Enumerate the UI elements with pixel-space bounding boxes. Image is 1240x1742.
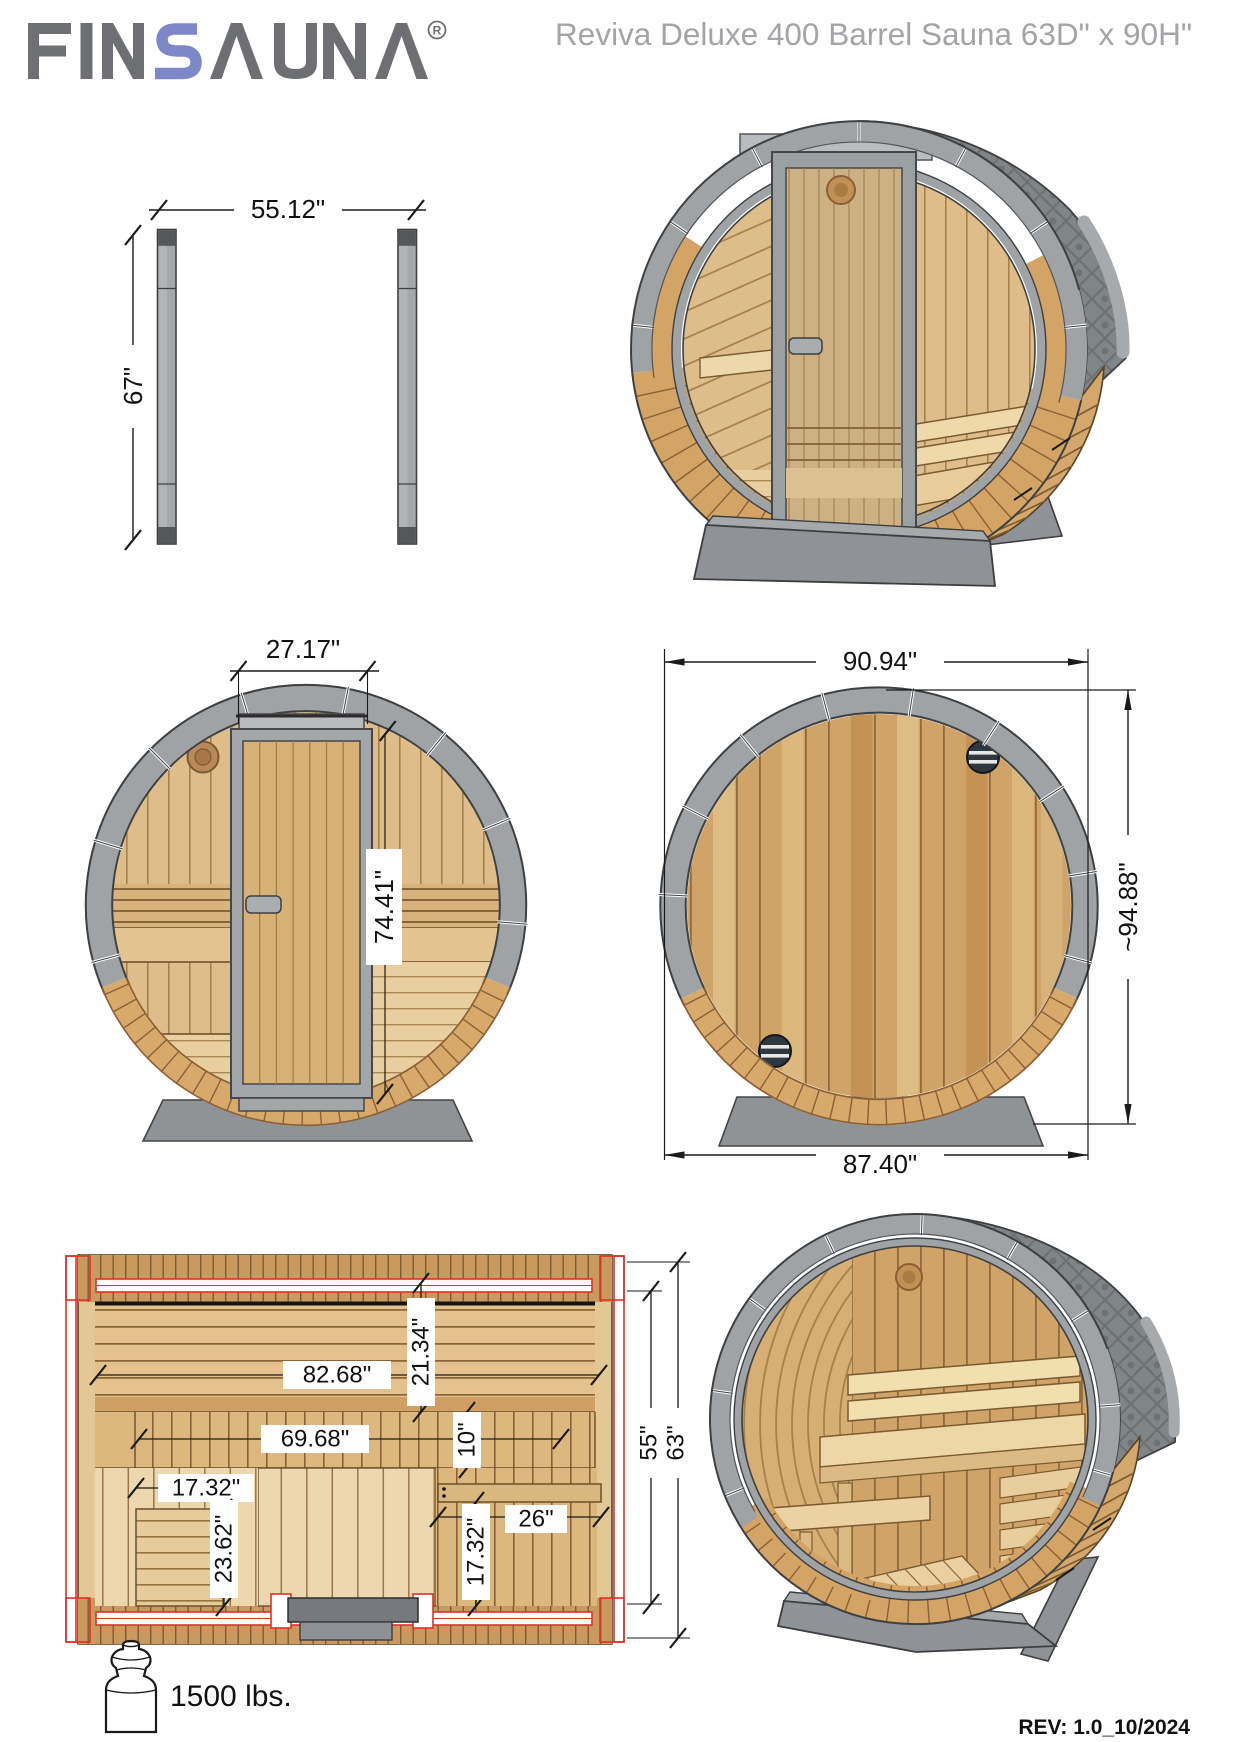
svg-text:REV: 1.0_10/2024: REV: 1.0_10/2024 <box>1018 1716 1190 1739</box>
svg-text:90.94": 90.94" <box>843 646 917 676</box>
svg-text:26": 26" <box>518 1506 553 1533</box>
svg-text:23.62": 23.62" <box>211 1515 238 1584</box>
svg-text:67": 67" <box>118 367 148 405</box>
svg-text:17.32": 17.32" <box>172 1475 241 1502</box>
svg-text:69.68": 69.68" <box>281 1426 350 1453</box>
svg-text:~94.88": ~94.88" <box>1113 862 1143 951</box>
svg-text:87.40": 87.40" <box>843 1149 917 1179</box>
svg-text:63": 63" <box>663 1425 690 1460</box>
svg-text:55": 55" <box>636 1425 663 1460</box>
svg-text:R: R <box>433 24 442 38</box>
svg-text:1500 lbs.: 1500 lbs. <box>170 1680 292 1713</box>
svg-text:82.68": 82.68" <box>303 1362 372 1389</box>
svg-text:74.41": 74.41" <box>369 870 399 944</box>
svg-text:27.17": 27.17" <box>266 634 340 664</box>
svg-text:21.34": 21.34" <box>408 1318 435 1387</box>
svg-text:55.12": 55.12" <box>251 194 325 224</box>
svg-text:17.32": 17.32" <box>463 1518 490 1587</box>
svg-text:10": 10" <box>454 1422 481 1457</box>
svg-text:Reviva Deluxe 400 Barrel Sauna: Reviva Deluxe 400 Barrel Sauna 63D" x 90… <box>555 16 1192 52</box>
